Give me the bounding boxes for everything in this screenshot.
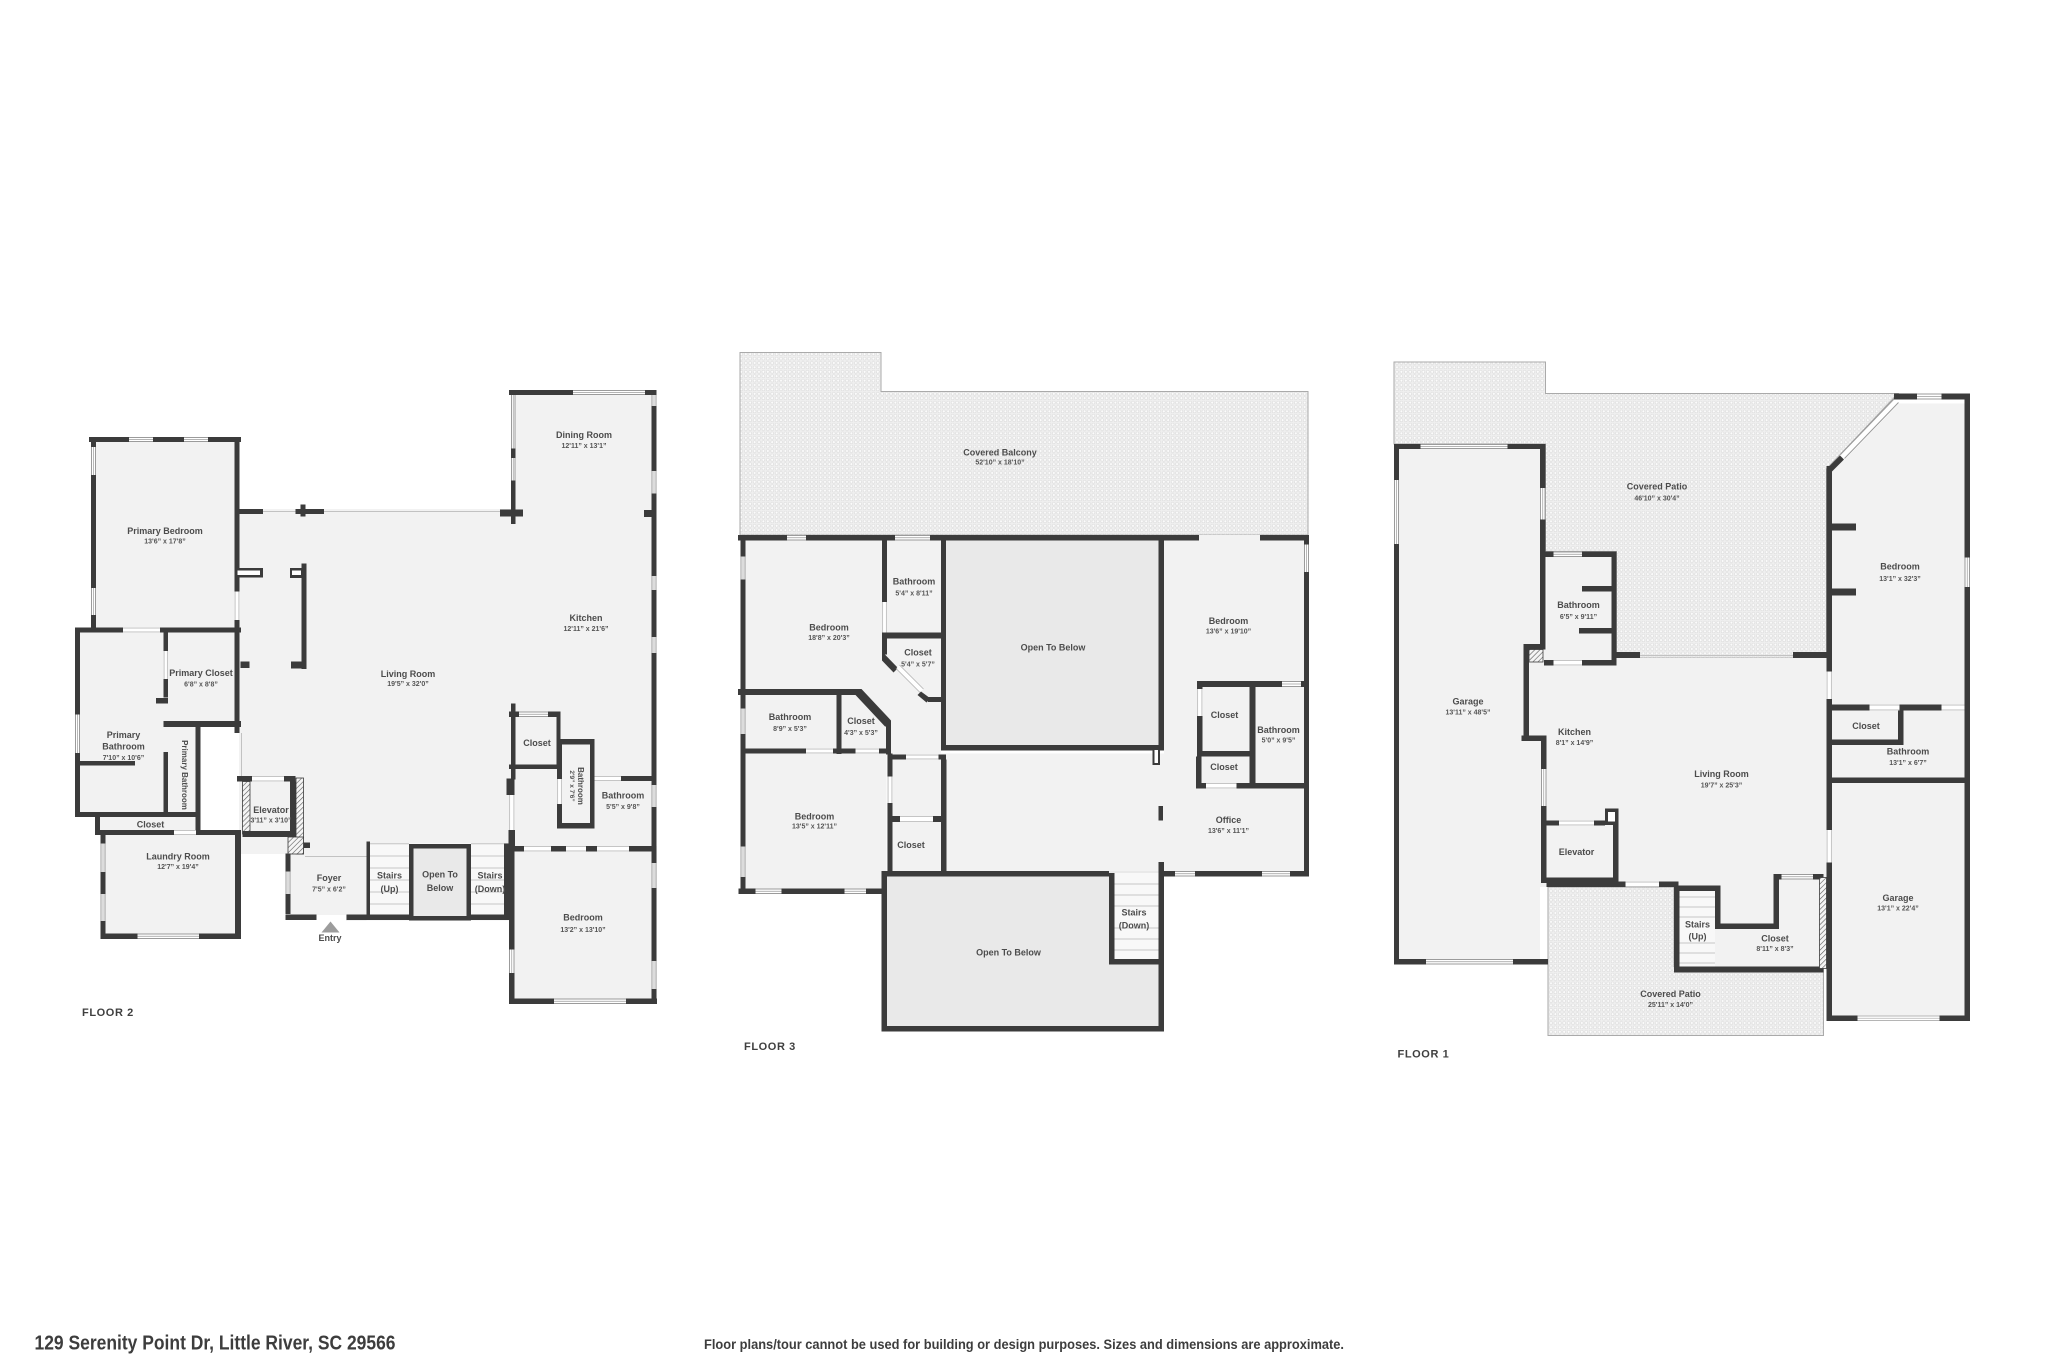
svg-text:(Up): (Up) — [381, 884, 399, 894]
svg-text:Bathroom: Bathroom — [1557, 600, 1600, 610]
svg-text:25'11” x 14'0”: 25'11” x 14'0” — [1648, 1002, 1693, 1009]
svg-text:13'2” x 13'10”: 13'2” x 13'10” — [560, 927, 605, 934]
svg-text:3'11” x 3'10”: 3'11” x 3'10” — [250, 818, 291, 825]
svg-text:Closet: Closet — [904, 648, 932, 658]
svg-text:13'1” x 32'3”: 13'1” x 32'3” — [1879, 576, 1920, 583]
svg-text:Entry: Entry — [318, 933, 341, 943]
svg-text:4'3” x 5'3”: 4'3” x 5'3” — [844, 730, 878, 737]
svg-text:Office: Office — [1216, 815, 1242, 825]
svg-text:Bathroom: Bathroom — [576, 767, 585, 805]
svg-text:Bedroom: Bedroom — [1880, 562, 1920, 572]
svg-text:Closet: Closet — [1210, 762, 1238, 772]
svg-text:Stairs: Stairs — [377, 871, 402, 881]
svg-text:Closet: Closet — [897, 840, 925, 850]
svg-text:Open To Below: Open To Below — [976, 948, 1042, 958]
svg-text:Bedroom: Bedroom — [1209, 616, 1249, 626]
svg-text:Garage: Garage — [1452, 697, 1483, 707]
svg-text:Stairs: Stairs — [1121, 908, 1146, 918]
svg-text:Primary Bathroom: Primary Bathroom — [180, 740, 189, 810]
svg-text:5'4” x 8'11”: 5'4” x 8'11” — [895, 591, 932, 598]
svg-text:13'6” x 17'8”: 13'6” x 17'8” — [144, 539, 185, 546]
svg-text:Covered Patio: Covered Patio — [1627, 482, 1688, 492]
svg-text:Floor plans/tour cannot be use: Floor plans/tour cannot be used for buil… — [704, 1336, 1344, 1352]
svg-text:18'8” x 20'3”: 18'8” x 20'3” — [808, 635, 849, 642]
svg-text:Bedroom: Bedroom — [795, 812, 835, 822]
svg-text:8'11” x 8'3”: 8'11” x 8'3” — [1756, 946, 1793, 953]
svg-text:FLOOR 3: FLOOR 3 — [744, 1041, 796, 1053]
svg-text:Primary: Primary — [107, 730, 141, 740]
svg-text:Closet: Closet — [1761, 934, 1789, 944]
svg-text:129 Serenity Point Dr, Little: 129 Serenity Point Dr, Little River, SC … — [35, 1333, 396, 1355]
svg-text:(Down): (Down) — [1119, 921, 1150, 931]
svg-text:Bathroom: Bathroom — [102, 742, 145, 752]
svg-text:19'7” x 25'3”: 19'7” x 25'3” — [1701, 783, 1742, 790]
svg-text:Dining Room: Dining Room — [556, 430, 612, 440]
svg-text:46'10” x 30'4”: 46'10” x 30'4” — [1634, 496, 1679, 503]
svg-text:13'1” x 6'7”: 13'1” x 6'7” — [1889, 760, 1927, 767]
svg-text:13'5” x 12'11”: 13'5” x 12'11” — [792, 824, 837, 831]
svg-text:Open To: Open To — [422, 870, 458, 880]
svg-text:(Down): (Down) — [475, 884, 506, 894]
svg-text:Bathroom: Bathroom — [893, 577, 936, 587]
svg-text:8'9” x 5'3”: 8'9” x 5'3” — [773, 726, 807, 733]
svg-text:Closet: Closet — [137, 820, 165, 830]
svg-text:12'11” x 13'1”: 12'11” x 13'1” — [562, 443, 607, 450]
svg-text:Bathroom: Bathroom — [1887, 747, 1930, 757]
svg-text:FLOOR 1: FLOOR 1 — [1398, 1049, 1450, 1061]
svg-text:Primary Closet: Primary Closet — [169, 668, 233, 678]
svg-text:Kitchen: Kitchen — [1558, 727, 1591, 737]
svg-text:FLOOR 2: FLOOR 2 — [82, 1007, 134, 1019]
svg-text:6'5” x 9'11”: 6'5” x 9'11” — [1560, 614, 1597, 621]
svg-text:Below: Below — [427, 883, 455, 893]
svg-text:52'10” x 18'10”: 52'10” x 18'10” — [975, 460, 1024, 467]
svg-text:13'11” x 48'5”: 13'11” x 48'5” — [1446, 710, 1491, 717]
svg-text:Closet: Closet — [1211, 710, 1239, 720]
svg-text:Bedroom: Bedroom — [563, 913, 603, 923]
svg-text:7'10” x 10'6”: 7'10” x 10'6” — [103, 755, 144, 762]
svg-text:Elevator: Elevator — [253, 805, 289, 815]
svg-text:Closet: Closet — [523, 738, 551, 748]
svg-text:8'1” x 14'9”: 8'1” x 14'9” — [1556, 740, 1594, 747]
svg-text:Open To Below: Open To Below — [1021, 643, 1087, 653]
svg-text:Bathroom: Bathroom — [602, 791, 645, 801]
svg-text:Foyer: Foyer — [317, 873, 342, 883]
svg-text:Covered Patio: Covered Patio — [1640, 989, 1701, 999]
svg-text:13'1” x 22'4”: 13'1” x 22'4” — [1877, 906, 1918, 913]
svg-text:Garage: Garage — [1882, 893, 1913, 903]
svg-text:Living Room: Living Room — [1694, 769, 1749, 779]
svg-text:Kitchen: Kitchen — [569, 613, 602, 623]
svg-text:Bedroom: Bedroom — [809, 623, 849, 633]
svg-text:Covered Balcony: Covered Balcony — [963, 448, 1037, 458]
svg-text:5'0” x 9'5”: 5'0” x 9'5” — [1262, 738, 1296, 745]
svg-text:Closet: Closet — [1852, 721, 1880, 731]
svg-text:Stairs: Stairs — [1685, 920, 1710, 930]
svg-text:Closet: Closet — [847, 716, 875, 726]
svg-text:Laundry Room: Laundry Room — [146, 852, 210, 862]
svg-text:12'11” x 21'6”: 12'11” x 21'6” — [564, 626, 609, 633]
svg-text:Primary Bedroom: Primary Bedroom — [127, 526, 203, 536]
svg-text:Stairs: Stairs — [477, 871, 502, 881]
svg-text:Living Room: Living Room — [381, 669, 436, 679]
svg-text:Elevator: Elevator — [1559, 847, 1595, 857]
svg-text:13'6” x 19'10”: 13'6” x 19'10” — [1206, 629, 1251, 636]
svg-text:13'6” x 11'1”: 13'6” x 11'1” — [1208, 828, 1249, 835]
svg-text:12'7” x 19'4”: 12'7” x 19'4” — [157, 864, 198, 871]
svg-text:7'5” x 6'2”: 7'5” x 6'2” — [312, 887, 346, 894]
svg-text:5'5” x 9'8”: 5'5” x 9'8” — [606, 804, 640, 811]
svg-text:5'4” x 5'7”: 5'4” x 5'7” — [901, 662, 935, 669]
svg-text:19'5” x 32'0”: 19'5” x 32'0” — [387, 681, 428, 688]
svg-text:Bathroom: Bathroom — [1257, 725, 1300, 735]
svg-text:(Up): (Up) — [1689, 932, 1707, 942]
svg-text:Bathroom: Bathroom — [769, 712, 812, 722]
svg-text:2'9” x 7'6”: 2'9” x 7'6” — [568, 770, 575, 801]
svg-text:6'8” x 8'8”: 6'8” x 8'8” — [184, 682, 218, 689]
